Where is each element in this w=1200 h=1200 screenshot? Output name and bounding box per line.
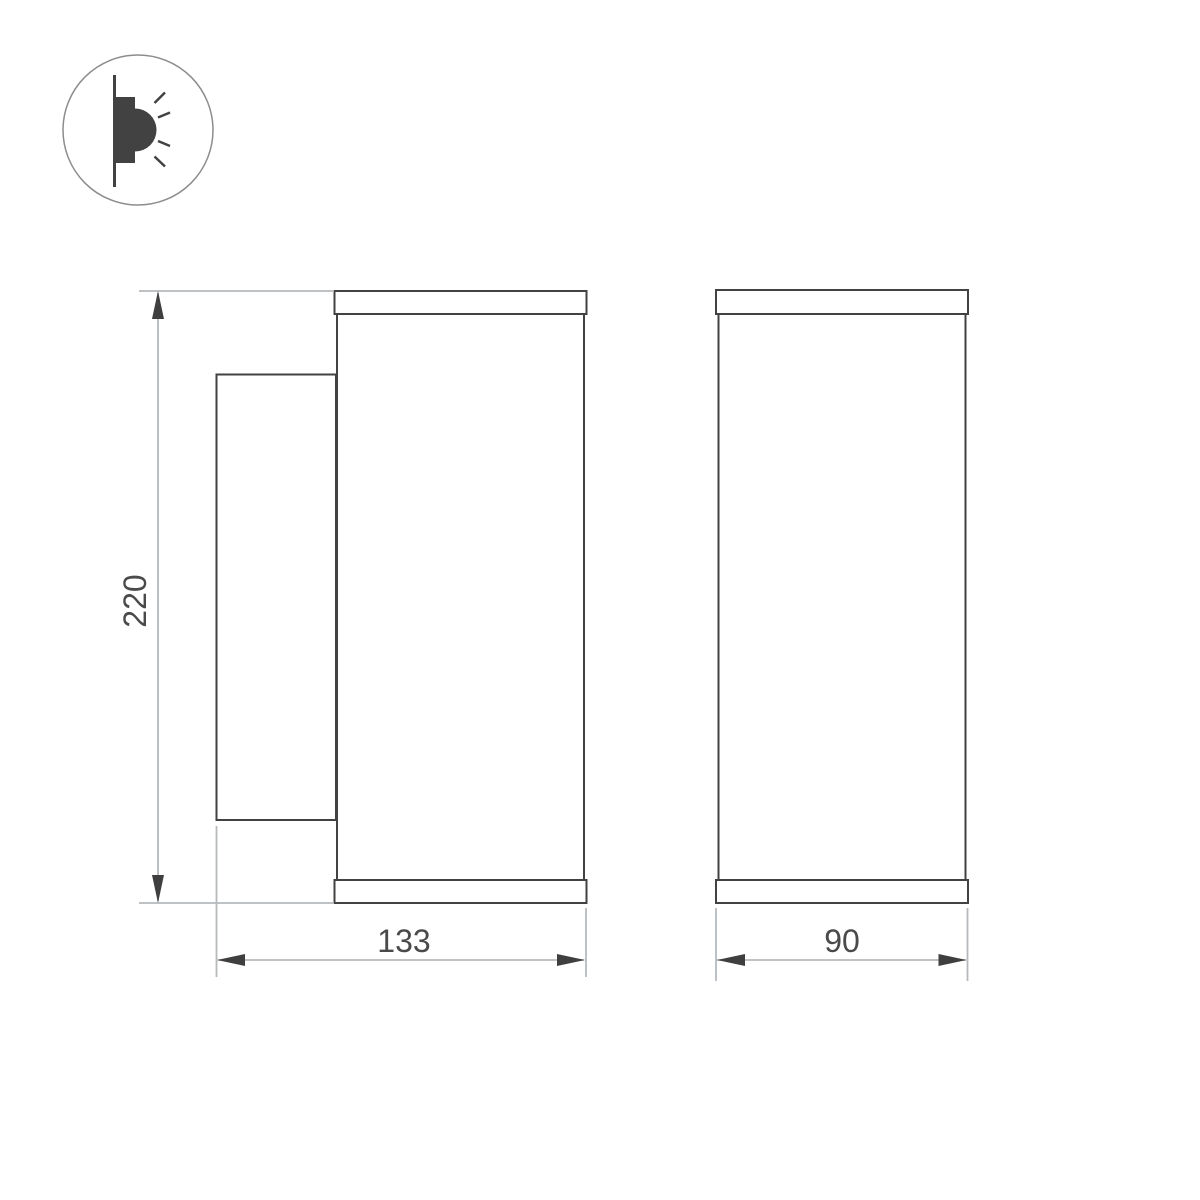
technical-drawing-page: 220 133 90 [0, 0, 1200, 1200]
side-view [217, 291, 587, 903]
front-view-bottom-cap [716, 880, 968, 903]
side-view-bottom-cap [335, 880, 587, 903]
front-view-cylinder-body [719, 314, 966, 880]
side-view-cylinder-body [337, 314, 584, 880]
front-width-dimension: 90 [716, 908, 968, 981]
technical-drawing-canvas: 220 133 90 [0, 0, 1200, 1200]
front-view-top-cap [716, 290, 968, 314]
side-view-top-cap [335, 291, 587, 314]
light-ray-icon [155, 157, 166, 167]
arrowhead-down-icon [152, 875, 164, 903]
side-depth-dimension: 133 [217, 826, 587, 977]
light-ray-icon [158, 113, 170, 118]
front-view [716, 290, 968, 903]
height-dimension: 220 [117, 291, 334, 903]
icon-lamp-lens [135, 109, 157, 152]
arrowhead-left-icon [217, 954, 245, 966]
arrowhead-left-icon [717, 954, 745, 966]
arrowhead-right-icon [939, 954, 967, 966]
arrowhead-up-icon [152, 291, 164, 319]
side-depth-dimension-label: 133 [377, 923, 430, 959]
icon-lamp-body [116, 97, 135, 163]
light-ray-icon [155, 93, 166, 104]
side-view-wall-plate [217, 375, 337, 821]
height-dimension-label: 220 [117, 574, 153, 627]
light-ray-icon [158, 141, 170, 146]
icon-light-rays [155, 93, 171, 167]
wall-light-icon [63, 55, 213, 205]
arrowhead-right-icon [557, 954, 585, 966]
front-width-dimension-label: 90 [824, 923, 860, 959]
